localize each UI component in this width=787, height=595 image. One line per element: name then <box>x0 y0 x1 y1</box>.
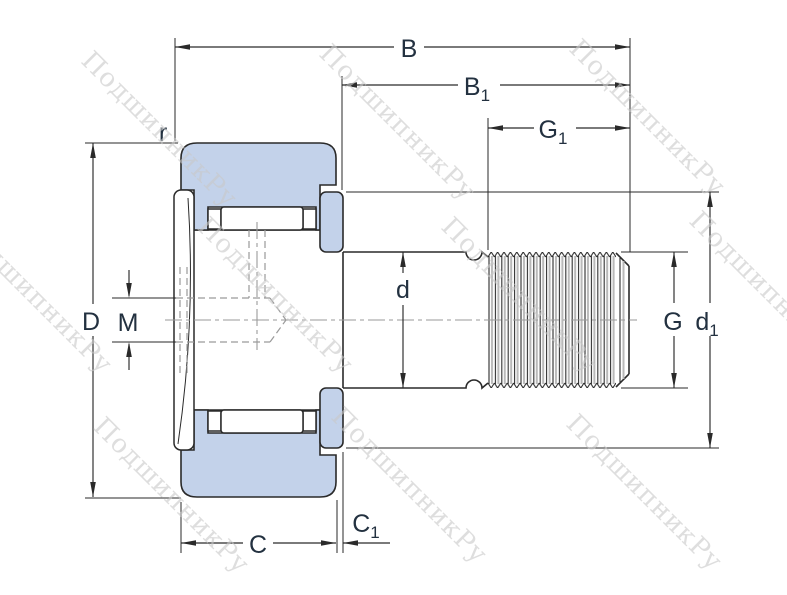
drawing-canvas: B B1 G1 r D M d G d1 C C1 ПодшипникРу По… <box>0 0 787 595</box>
cage-section <box>303 411 316 431</box>
watermark-text: ПодшипникРу <box>325 402 493 570</box>
cage-section <box>303 209 316 229</box>
watermark-text: ПодшипникРу <box>313 39 481 207</box>
watermark-text: ПодшипникРу <box>560 409 728 577</box>
dim-label-C1: C1 <box>352 510 380 542</box>
dim-label-B: B <box>401 35 418 63</box>
watermark-text: ПодшипникРу <box>75 46 243 214</box>
watermark-text: ПодшипникРу <box>0 212 118 380</box>
dim-label-d: d <box>396 276 410 304</box>
dim-label-G: G <box>663 308 682 336</box>
needle-roller-bottom <box>221 410 303 433</box>
watermark-text: ПодшипникРу <box>683 206 787 374</box>
dim-label-M: M <box>118 309 139 337</box>
watermark-text: ПодшипникРу <box>563 34 731 202</box>
bearing-drawing: B B1 G1 r D M d G d1 C C1 ПодшипникРу По… <box>0 0 787 595</box>
needle-roller-top <box>221 207 303 230</box>
cage-section <box>208 411 221 431</box>
flange-top <box>320 192 343 252</box>
